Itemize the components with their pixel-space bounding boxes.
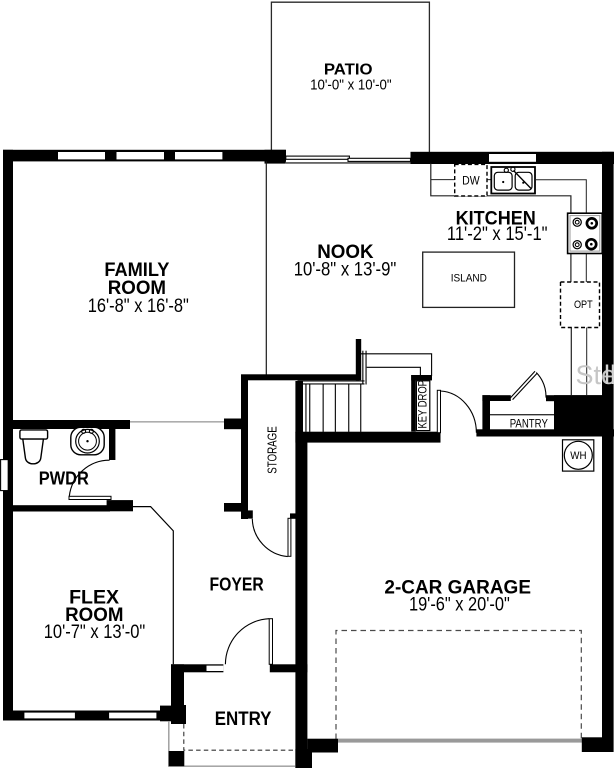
svg-text:10'-8" x 13'-9": 10'-8" x 13'-9"	[294, 259, 397, 280]
svg-text:STORAGE: STORAGE	[265, 426, 280, 474]
svg-text:PWDR: PWDR	[39, 469, 89, 489]
svg-text:10'-0" x 10'-0": 10'-0" x 10'-0"	[310, 77, 392, 93]
svg-text:16'-8" x 16'-8": 16'-8" x 16'-8"	[88, 296, 189, 317]
svg-text:ENTRY: ENTRY	[215, 709, 272, 730]
svg-text:WH: WH	[570, 450, 586, 462]
svg-text:KEY DROP: KEY DROP	[415, 380, 429, 429]
svg-text:10'-7" x 13'-0": 10'-7" x 13'-0"	[44, 622, 146, 643]
svg-text:DW: DW	[462, 176, 480, 188]
svg-text:11'-2" x 15'-1": 11'-2" x 15'-1"	[447, 224, 548, 245]
svg-text:PANTRY: PANTRY	[510, 417, 548, 431]
svg-text:OPT: OPT	[574, 299, 593, 311]
svg-text:ISLAND: ISLAND	[451, 272, 487, 284]
svg-text:PATIO: PATIO	[324, 62, 373, 79]
svg-text:19'-6" x 20'-0": 19'-6" x 20'-0"	[409, 595, 510, 616]
svg-text:ll: ll	[604, 360, 614, 390]
svg-text:FOYER: FOYER	[210, 574, 264, 594]
